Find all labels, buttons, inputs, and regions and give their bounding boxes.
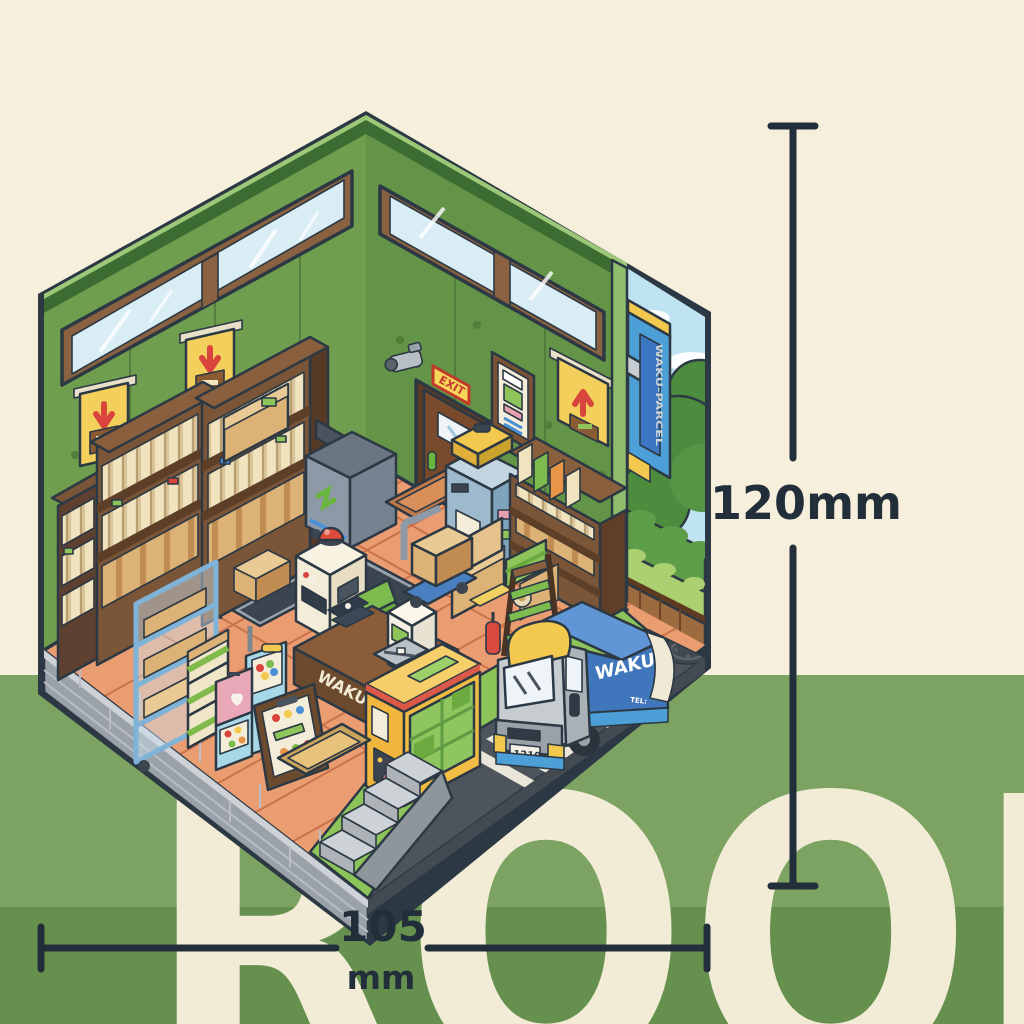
height-dimension-label: 120mm (710, 476, 902, 530)
width-dimension-value: 105 (339, 902, 427, 951)
product-illustration: ROOM (0, 0, 1024, 1024)
parcel-locker-sign-label: WAKU-PARCEL (653, 344, 663, 446)
outdoor-parcel-locker: WAKU-PARCEL (622, 300, 670, 482)
width-dimension-unit: mm (347, 958, 416, 997)
mini-vending-machine (216, 668, 252, 770)
